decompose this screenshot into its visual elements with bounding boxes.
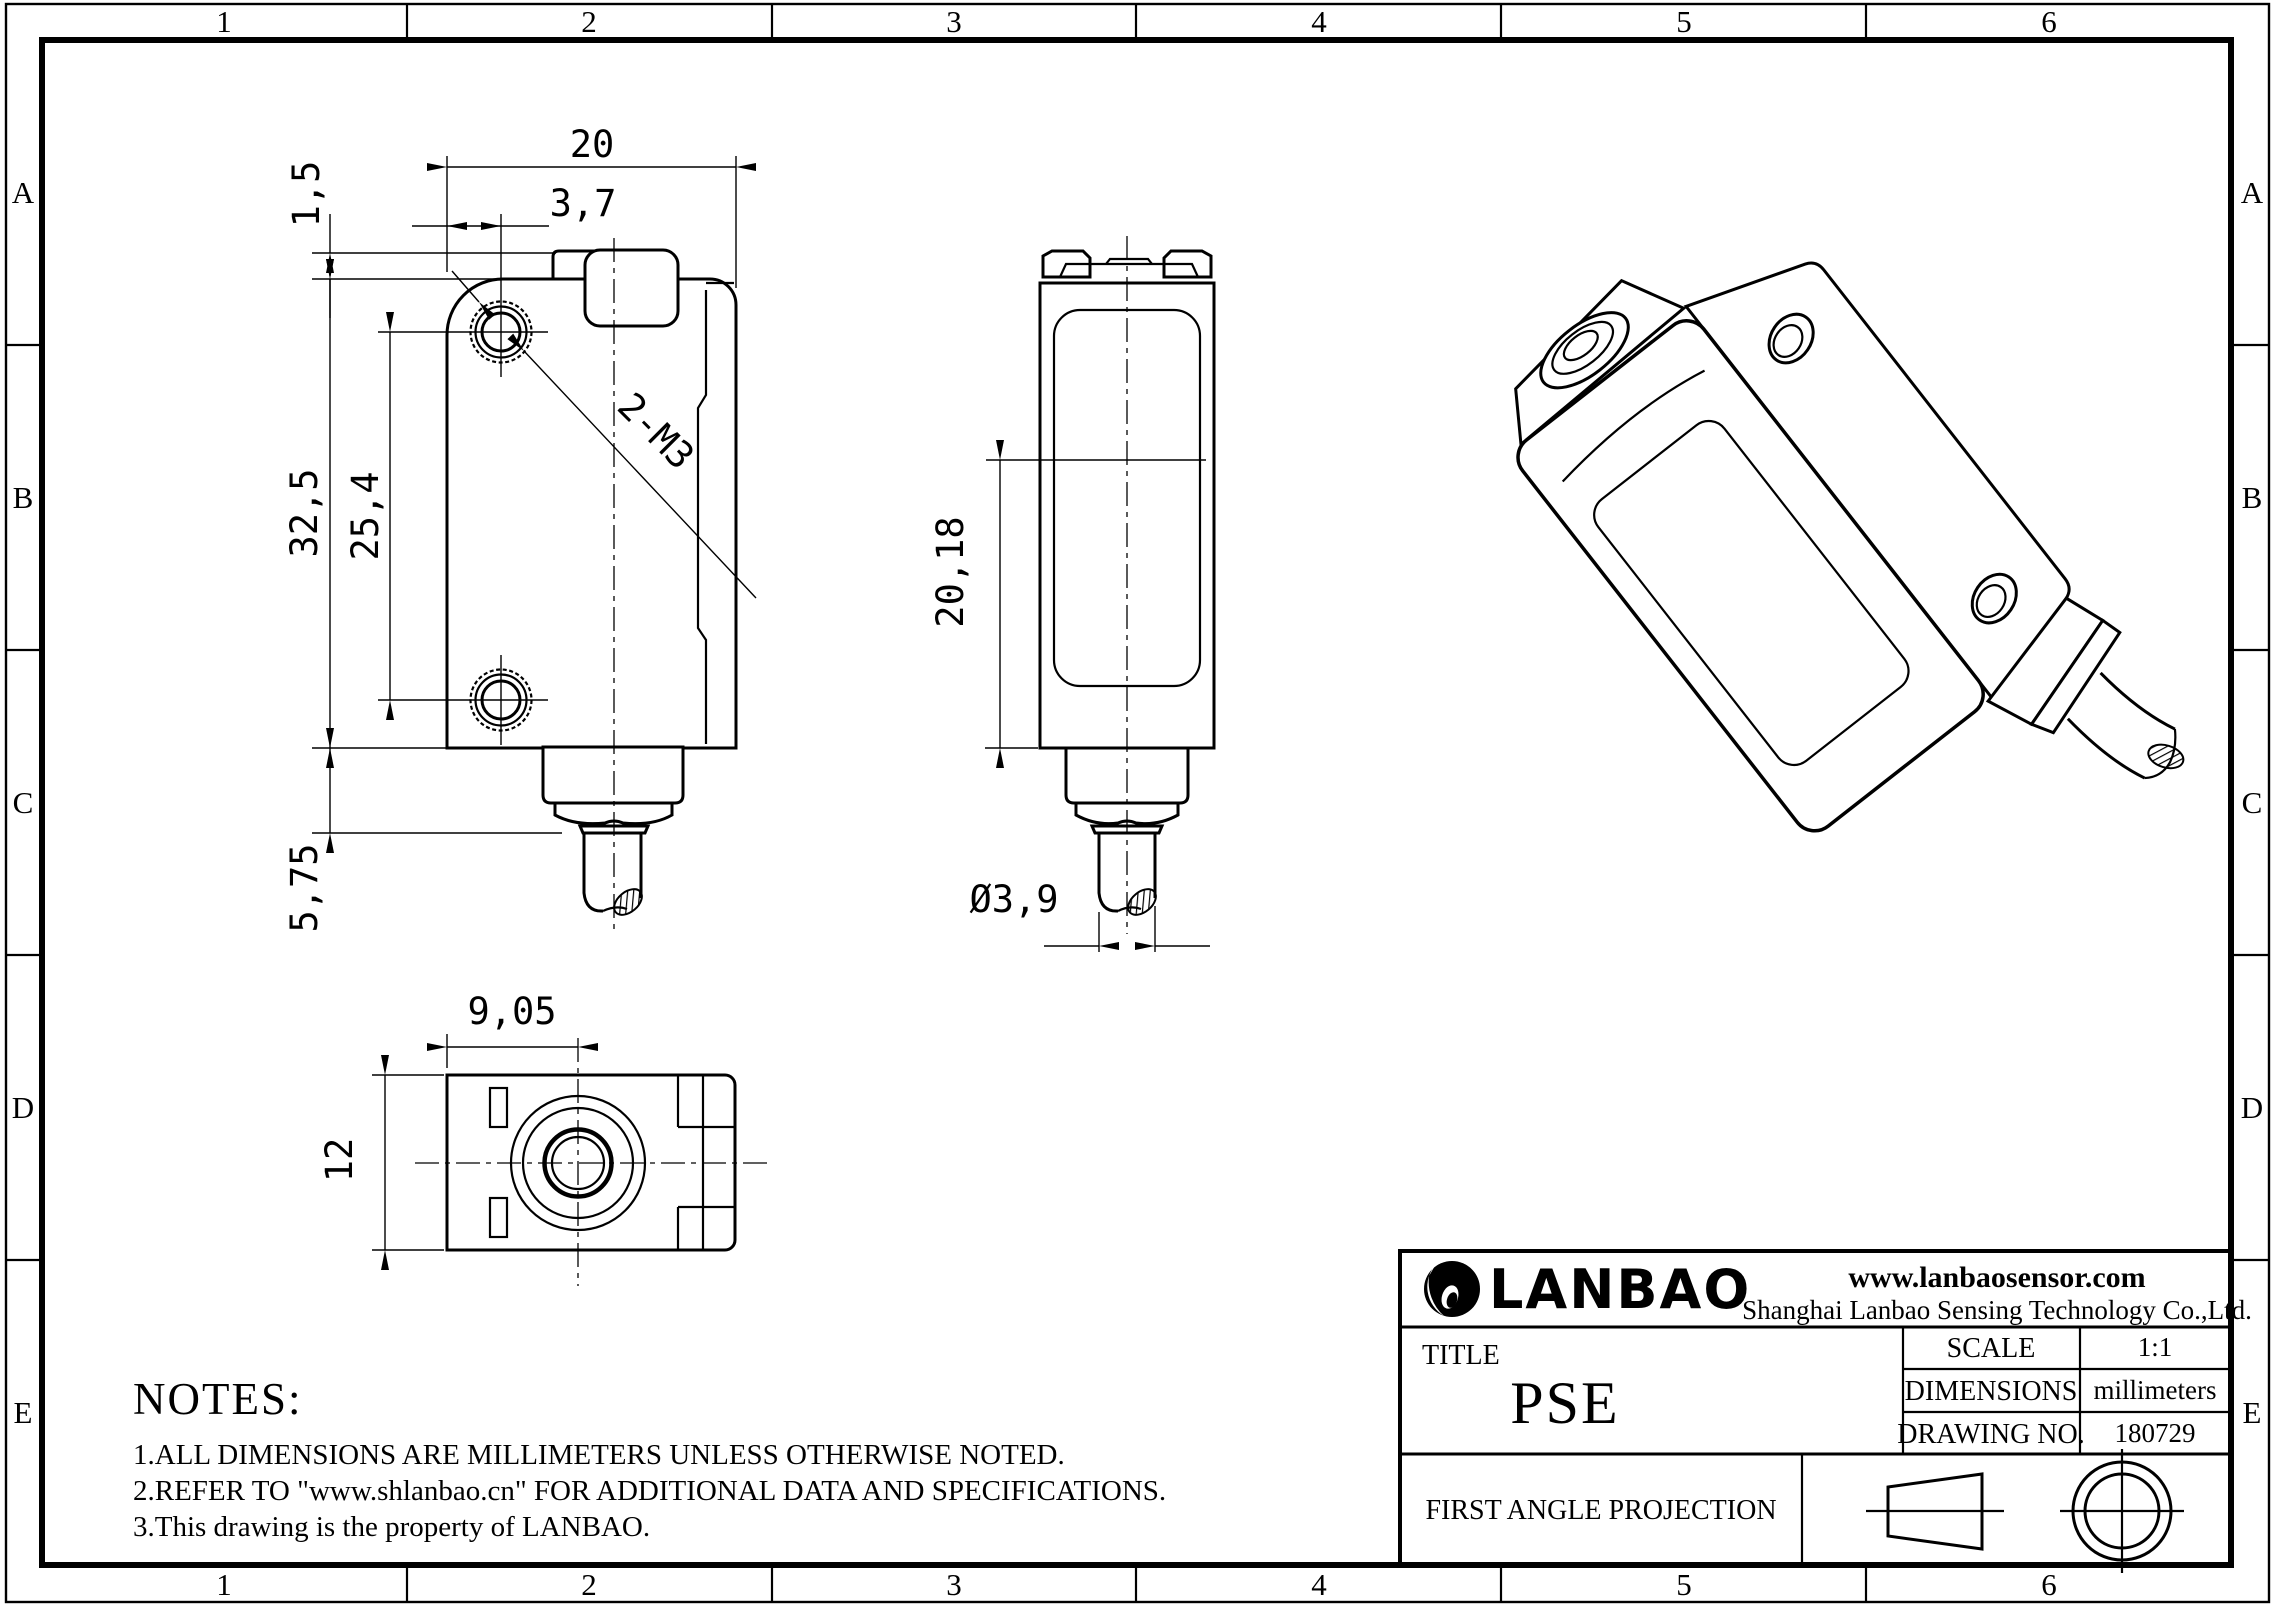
notes: NOTES: 1.ALL DIMENSIONS ARE MILLIMETERS …	[133, 1374, 1166, 1543]
bottom-slot-top	[490, 1088, 507, 1127]
dimensions-label: DIMENSIONS	[1905, 1376, 2078, 1407]
zone-row-label: E	[2243, 1395, 2262, 1430]
zone-row-label: D	[2241, 1090, 2263, 1125]
front-side-lobe	[585, 250, 678, 326]
dim-hole-spacing: 25,4	[344, 471, 387, 560]
dim-cable-diameter: Ø3,9	[969, 878, 1058, 921]
zone-col-label: 5	[1676, 1567, 1692, 1602]
bottom-view: 9,05 12	[318, 990, 770, 1286]
lanbao-logo: LANBAO	[1424, 1258, 1751, 1321]
drawing-title: PSE	[1510, 1370, 1619, 1436]
bottom-slot-bottom	[490, 1198, 507, 1237]
note-item: 3.This drawing is the property of LANBAO…	[133, 1511, 650, 1543]
zone-col-label: 5	[1676, 4, 1692, 39]
drawing-sheet: 1 2 3 4 5 6 1 2 3 4 5 6 A B C D E A B C …	[0, 0, 2275, 1608]
notes-heading: NOTES:	[133, 1374, 303, 1424]
title-block: LANBAO www.lanbaosensor.com Shanghai Lan…	[1400, 1251, 2252, 1573]
drawing-no-label: DRAWING NO.	[1897, 1419, 2085, 1450]
zone-row-label: C	[2242, 785, 2263, 820]
zone-col-label: 6	[2041, 1567, 2057, 1602]
projection-symbol	[1866, 1449, 2184, 1573]
dim-hole-offset: 3,7	[550, 182, 617, 225]
projection-label: FIRST ANGLE PROJECTION	[1425, 1495, 1776, 1526]
zone-row-label: B	[13, 480, 34, 515]
scale-label: SCALE	[1947, 1333, 2036, 1364]
dim-width: 20	[570, 123, 615, 166]
dim-lens-center: 9,05	[467, 990, 556, 1033]
title-label: TITLE	[1422, 1340, 1500, 1371]
dim-depth: 12	[318, 1138, 361, 1183]
dim-connector-height: 5,75	[283, 843, 326, 932]
side-view: 20,18 Ø3,9	[929, 236, 1214, 952]
zone-col-label: 3	[946, 1567, 962, 1602]
note-item: 2.REFER TO "www.shlanbao.cn" FOR ADDITIO…	[133, 1475, 1166, 1507]
note-item: 1.ALL DIMENSIONS ARE MILLIMETERS UNLESS …	[133, 1439, 1065, 1471]
zone-row-label: B	[2242, 480, 2263, 515]
zone-row-label: D	[12, 1090, 34, 1125]
brand-wordmark: LANBAO	[1489, 1258, 1751, 1321]
zone-col-label: 4	[1311, 4, 1327, 39]
zone-col-label: 6	[2041, 4, 2057, 39]
front-view: 20 3,7 1,5 32,5 25,4 5,75 2-M3	[283, 123, 756, 933]
zone-row-label: E	[14, 1395, 33, 1430]
company-name: Shanghai Lanbao Sensing Technology Co.,L…	[1742, 1295, 2252, 1325]
zone-row-label: A	[12, 175, 35, 210]
zone-col-label: 2	[581, 1567, 597, 1602]
website: www.lanbaosensor.com	[1848, 1261, 2145, 1294]
zone-col-label: 1	[216, 4, 232, 39]
zone-row-label: C	[13, 785, 34, 820]
zone-col-label: 3	[946, 4, 962, 39]
drawing-no-value: 180729	[2115, 1418, 2196, 1448]
zone-row-label: A	[2241, 175, 2264, 210]
scale-value: 1:1	[2138, 1332, 2173, 1362]
zone-col-label: 2	[581, 4, 597, 39]
isometric-view	[1468, 172, 2210, 976]
dim-body-height: 32,5	[283, 468, 326, 557]
dim-axis-to-bottom: 20,18	[929, 516, 972, 627]
front-connector	[543, 747, 683, 803]
zone-col-label: 1	[216, 1567, 232, 1602]
dim-head-step: 1,5	[285, 161, 328, 228]
dimensions-value: millimeters	[2094, 1375, 2217, 1405]
zone-col-label: 4	[1311, 1567, 1327, 1602]
